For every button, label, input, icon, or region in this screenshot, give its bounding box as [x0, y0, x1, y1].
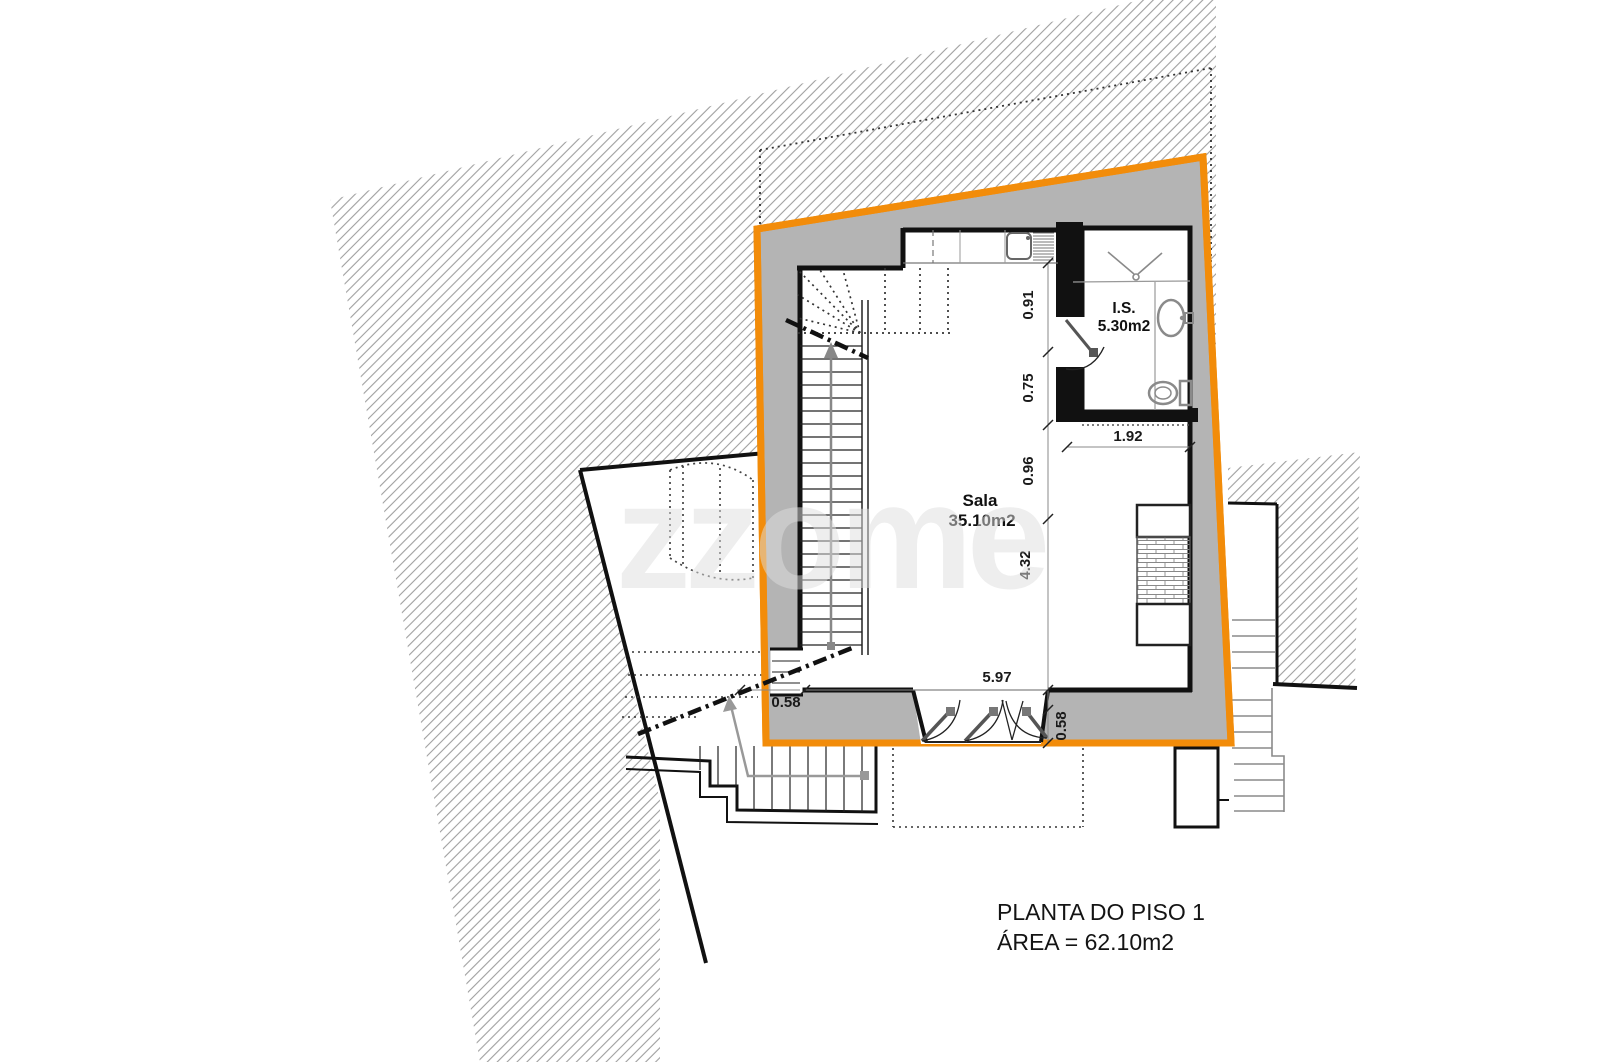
dim-597: 5.97 [982, 669, 1011, 686]
floor-plan-canvas: Sala 35.10m2 I.S. 5.30m2 0.91 0.75 0.96 … [0, 0, 1600, 1062]
dim-192: 1.92 [1113, 428, 1142, 445]
dim-058-left: 0.58 [771, 694, 800, 711]
plan-area: ÁREA = 62.10m2 [997, 929, 1174, 955]
floor-plan-drawing: Sala 35.10m2 I.S. 5.30m2 0.91 0.75 0.96 … [0, 0, 1600, 1062]
entrance-door [913, 690, 1048, 744]
brick-hatch [1137, 537, 1190, 604]
basin-drain [1180, 316, 1184, 320]
dim-058-right: 0.58 [1053, 711, 1070, 740]
watermark-text: zzome [616, 452, 1046, 620]
faucet-icon [1026, 236, 1030, 240]
plan-title: PLANTA DO PISO 1 [997, 899, 1205, 925]
chimney-element [1137, 505, 1190, 645]
is-name-label: I.S. [1112, 300, 1135, 317]
dim-075: 0.75 [1020, 373, 1037, 402]
is-area-label: 5.30m2 [1098, 318, 1151, 335]
dim-091: 0.91 [1020, 290, 1037, 319]
right-pillar [1175, 748, 1218, 827]
